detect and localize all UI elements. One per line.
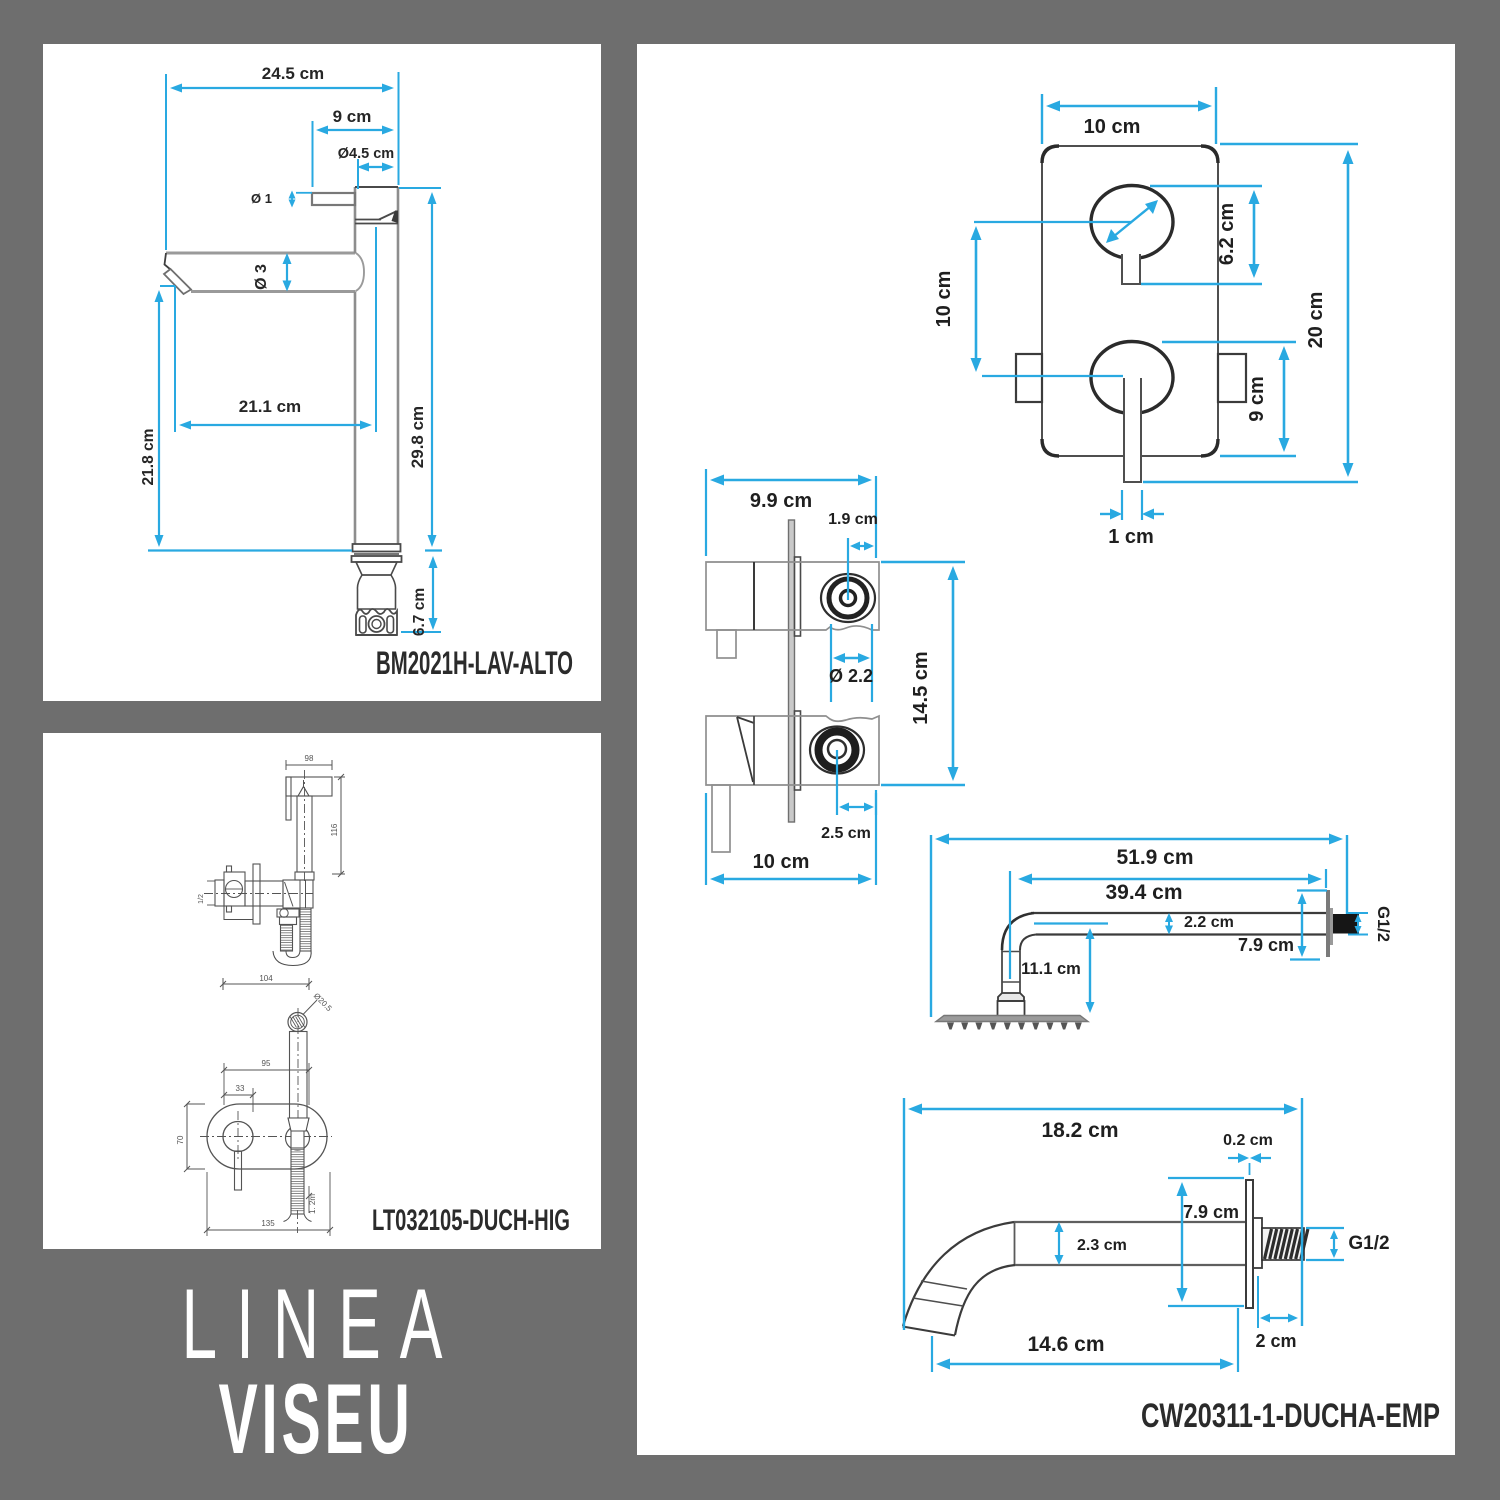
svg-text:G1/2: G1/2 — [1348, 1233, 1389, 1254]
svg-text:95: 95 — [262, 1059, 271, 1068]
svg-text:51.9 cm: 51.9 cm — [1116, 846, 1193, 869]
svg-text:9.9 cm: 9.9 cm — [750, 490, 812, 512]
svg-text:VISEU: VISEU — [218, 1364, 413, 1475]
svg-text:6.7 cm: 6.7 cm — [411, 588, 428, 636]
svg-text:135: 135 — [261, 1219, 275, 1228]
svg-text:14.5 cm: 14.5 cm — [910, 651, 932, 724]
svg-text:BM2021H-LAV-ALTO: BM2021H-LAV-ALTO — [376, 645, 573, 681]
svg-text:Ø 2.2: Ø 2.2 — [829, 666, 873, 686]
svg-text:98: 98 — [305, 754, 314, 763]
svg-text:1. 2m: 1. 2m — [308, 1194, 317, 1214]
svg-text:11.1 cm: 11.1 cm — [1021, 960, 1081, 978]
svg-text:2.5 cm: 2.5 cm — [821, 825, 871, 842]
svg-text:21.1 cm: 21.1 cm — [239, 397, 301, 416]
svg-text:10 cm: 10 cm — [1084, 116, 1141, 138]
svg-text:LINEA: LINEA — [182, 1268, 462, 1380]
svg-text:70: 70 — [176, 1135, 185, 1144]
svg-text:24.5 cm: 24.5 cm — [262, 64, 324, 83]
svg-text:20 cm: 20 cm — [1305, 292, 1327, 349]
svg-text:7.9 cm: 7.9 cm — [1238, 935, 1294, 955]
svg-text:14.6 cm: 14.6 cm — [1027, 1333, 1104, 1356]
svg-text:116: 116 — [330, 823, 339, 836]
svg-text:1 cm: 1 cm — [1108, 526, 1154, 548]
svg-text:9 cm: 9 cm — [333, 107, 372, 126]
svg-text:6.2 cm: 6.2 cm — [1216, 203, 1238, 265]
svg-text:G1/2: G1/2 — [1374, 906, 1392, 942]
svg-text:29.8 cm: 29.8 cm — [408, 406, 427, 468]
svg-text:39.4 cm: 39.4 cm — [1105, 881, 1182, 904]
svg-text:104: 104 — [259, 974, 273, 983]
svg-text:21.8 cm: 21.8 cm — [140, 429, 157, 486]
svg-text:10 cm: 10 cm — [753, 851, 810, 873]
svg-text:1/2: 1/2 — [198, 894, 205, 904]
svg-text:Ø 1: Ø 1 — [251, 191, 272, 206]
svg-text:0.2 cm: 0.2 cm — [1223, 1132, 1273, 1149]
svg-text:10 cm: 10 cm — [933, 271, 955, 328]
svg-text:Ø4.5 cm: Ø4.5 cm — [338, 146, 394, 162]
svg-text:18.2 cm: 18.2 cm — [1041, 1119, 1118, 1142]
svg-text:7.9 cm: 7.9 cm — [1183, 1202, 1239, 1222]
svg-text:2.3 cm: 2.3 cm — [1077, 1237, 1127, 1254]
svg-text:CW20311-1-DUCHA-EMP: CW20311-1-DUCHA-EMP — [1141, 1397, 1440, 1435]
svg-text:2 cm: 2 cm — [1255, 1331, 1296, 1351]
svg-text:33: 33 — [236, 1084, 245, 1093]
svg-text:9 cm: 9 cm — [1246, 376, 1268, 422]
svg-text:2.2 cm: 2.2 cm — [1184, 914, 1234, 931]
svg-text:1.9 cm: 1.9 cm — [828, 511, 878, 528]
svg-text:Ø 3: Ø 3 — [253, 264, 270, 290]
svg-text:LT032105-DUCH-HIG: LT032105-DUCH-HIG — [372, 1204, 570, 1237]
